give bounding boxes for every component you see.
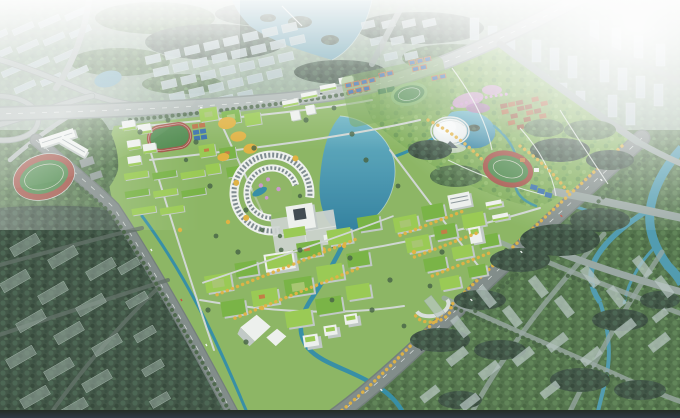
rendering-canvas (0, 0, 680, 418)
bottom-vignette (0, 410, 680, 418)
haze-overlay (0, 0, 680, 418)
masterplan-rendering (0, 0, 680, 418)
